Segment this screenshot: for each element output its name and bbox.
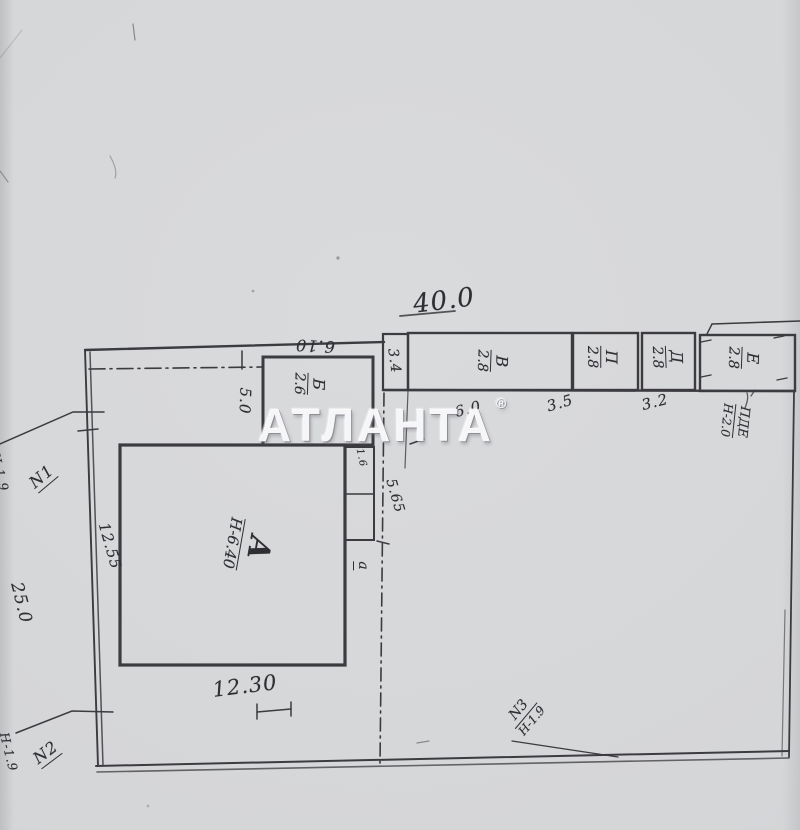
- shed-v-letter: В: [492, 355, 509, 367]
- speck-2: [252, 290, 255, 293]
- shed-p-letter: П: [602, 350, 619, 364]
- atlanta-watermark: АТЛАНТА®: [258, 402, 509, 448]
- internal-boundary-horizontal: [89, 367, 263, 369]
- scanned-plan-page: АТЛАНТА® 40.0 В 2.8 П 2.8 Д 2.8 Е 2.8 3.…: [0, 0, 800, 830]
- crease-top: [133, 24, 135, 40]
- shed-d-letter: Д: [667, 350, 684, 364]
- crease-corner: [0, 30, 22, 58]
- line-above-shed-e: [712, 321, 800, 324]
- shed-p-label: П 2.8: [585, 346, 619, 368]
- building-a-label: А Н-6.40: [220, 516, 278, 576]
- leader-n2: [16, 711, 113, 733]
- crease-left-edge: [0, 171, 8, 182]
- shed-d-height: 2.8: [649, 346, 664, 369]
- shed-e-dash-4: [777, 378, 787, 380]
- shed-e-dash-1: [701, 340, 711, 342]
- lot-top-boundary: [85, 342, 384, 350]
- shed-v-height: 2.8: [474, 349, 489, 372]
- porch-letter: а: [353, 561, 371, 570]
- lot-right-boundary: [789, 392, 794, 757]
- shed-note-letters: ПДЕ: [734, 405, 751, 438]
- shed-e-dash-2: [701, 375, 711, 377]
- watermark-text: АТЛАНТА: [258, 402, 494, 448]
- leader-n3: [512, 741, 618, 757]
- dim-12-30-bar: [257, 709, 291, 712]
- lot-bottom-boundary-inner: [97, 758, 789, 772]
- shed-e-dash-3: [774, 336, 784, 338]
- dim-shed-strip: 3.4: [384, 347, 403, 374]
- building-b-label: Б 2.6: [291, 372, 326, 395]
- shed-e-letter: Е: [743, 352, 760, 364]
- crease-left-curve: [110, 156, 116, 178]
- dim-building-b-side: 5.0: [236, 387, 255, 414]
- lot-bottom-boundary: [96, 751, 789, 766]
- shed-v-label: В 2.8: [474, 349, 509, 372]
- building-a-letter: А: [241, 533, 276, 563]
- shed-row-baseline: [383, 390, 795, 391]
- shed-p-height: 2.8: [585, 346, 600, 368]
- shed-note-height: Н-2.0: [719, 403, 735, 438]
- shed-e-label: Е 2.8: [725, 346, 760, 369]
- shed-e-height: 2.8: [725, 346, 740, 369]
- line-above-shed-e-hook: [707, 324, 712, 334]
- registered-mark: ®: [496, 396, 509, 410]
- fraction-bar: [600, 346, 601, 368]
- shed-note: ПДЕ Н-2.0: [719, 403, 752, 439]
- speck-3: [147, 805, 150, 808]
- speck-1: [336, 256, 339, 259]
- stray-mark-yard: [417, 741, 429, 743]
- building-b-height: 2.6: [291, 372, 306, 395]
- building-b-letter: Б: [309, 378, 326, 390]
- shed-d-label: Д 2.8: [649, 345, 684, 368]
- tick-left-boundary: [78, 429, 98, 431]
- dim-building-b-width: 6.10: [295, 335, 336, 356]
- lot-right-boundary-inner: [782, 610, 785, 756]
